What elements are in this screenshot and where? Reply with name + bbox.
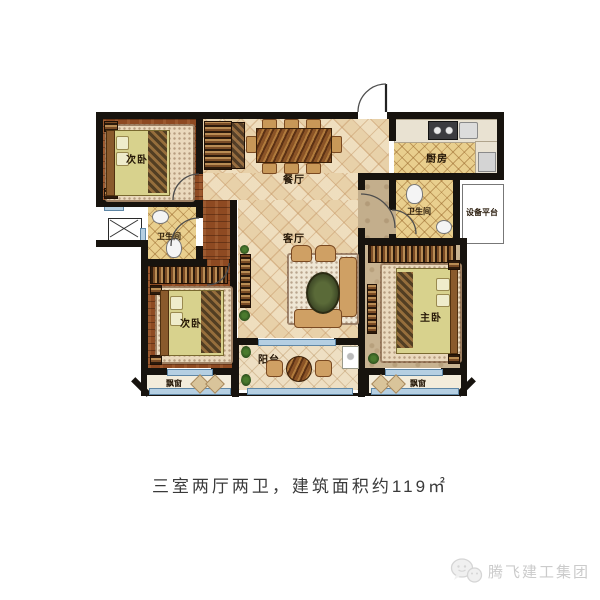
dining-chair bbox=[331, 136, 342, 153]
balcony-sliding-door bbox=[258, 339, 336, 346]
plant bbox=[239, 310, 250, 321]
wall bbox=[196, 119, 203, 174]
balcony-window bbox=[247, 388, 353, 395]
sofa-right bbox=[339, 257, 357, 317]
coffee-table bbox=[306, 272, 340, 314]
pillow bbox=[436, 294, 450, 307]
bedroom2-window bbox=[167, 369, 213, 376]
floor-plan-page: { "caption": { "text": "三室两厅两卫，建筑面积约119㎡… bbox=[0, 0, 600, 600]
hall-floor bbox=[203, 173, 358, 200]
wall bbox=[387, 112, 504, 119]
wall bbox=[229, 259, 237, 266]
dining-chair bbox=[306, 163, 321, 174]
bedroom1-throw bbox=[148, 131, 167, 193]
master-tv-cabinet bbox=[367, 284, 377, 334]
bath-right-label: 卫生间 bbox=[407, 206, 431, 217]
master-label: 主卧 bbox=[420, 309, 442, 324]
plant bbox=[240, 245, 249, 254]
plant bbox=[368, 353, 379, 364]
kitchen-sink-icon bbox=[459, 122, 478, 139]
bay-left-label: 飘窗 bbox=[166, 378, 182, 389]
watermark-text: 腾飞建工集团 bbox=[488, 561, 590, 582]
master-throw bbox=[397, 272, 413, 348]
bath-left-label: 卫生间 bbox=[157, 231, 181, 242]
bay-right-label: 飘窗 bbox=[410, 378, 426, 389]
bedroom2-label: 次卧 bbox=[180, 315, 202, 330]
bedroom2-headboard bbox=[160, 290, 169, 356]
master-nightstand bbox=[448, 354, 460, 364]
watermark: 腾飞建工集团 bbox=[450, 556, 590, 586]
dining-chair bbox=[262, 163, 277, 174]
pillow bbox=[436, 278, 450, 291]
kitchen-appliance-icon bbox=[478, 152, 496, 172]
washing-machine-icon bbox=[342, 346, 359, 369]
equipment-platform-label: 设备平台 bbox=[466, 207, 498, 218]
floor-plan: 次卧 餐厅 厨房 卫生间 设备平台 卫生间 客厅 次卧 bbox=[0, 0, 600, 600]
caption: 三室两厅两卫，建筑面积约119㎡ bbox=[0, 472, 600, 497]
bedroom2-wardrobe bbox=[150, 266, 228, 284]
plant bbox=[241, 346, 251, 358]
wall bbox=[196, 246, 203, 259]
elevator-shaft bbox=[108, 218, 142, 241]
wall bbox=[96, 112, 358, 119]
entry-cabinet bbox=[204, 121, 232, 170]
wall bbox=[358, 238, 467, 245]
bath-left-sink-icon bbox=[152, 210, 169, 224]
pillow bbox=[116, 136, 129, 150]
bedroom2-throw bbox=[201, 291, 221, 353]
dining-table bbox=[256, 128, 332, 163]
balcony-chair bbox=[315, 360, 332, 377]
balcony-chair bbox=[266, 360, 283, 377]
bath-right-sink-icon bbox=[436, 220, 452, 234]
bedroom1-label: 次卧 bbox=[126, 151, 148, 166]
balcony-table bbox=[286, 356, 312, 382]
entry-cabinet-2 bbox=[231, 122, 245, 169]
toilet-icon bbox=[406, 184, 423, 204]
wall bbox=[358, 173, 504, 180]
wall bbox=[389, 119, 396, 141]
bedroom2-nightstand bbox=[150, 355, 162, 365]
plant bbox=[241, 374, 251, 386]
master-nightstand bbox=[448, 260, 460, 270]
wall bbox=[96, 112, 103, 207]
chat-bubbles-icon bbox=[450, 556, 484, 586]
tv-cabinet bbox=[240, 254, 251, 308]
armchair bbox=[291, 245, 312, 262]
master-headboard bbox=[450, 268, 458, 354]
armchair bbox=[315, 245, 336, 262]
master-wardrobe bbox=[368, 245, 456, 263]
wall bbox=[453, 177, 460, 245]
living-label: 客厅 bbox=[283, 230, 305, 245]
pillow bbox=[170, 296, 183, 310]
bedroom1-headboard bbox=[106, 130, 115, 196]
wall bbox=[196, 200, 203, 218]
wall bbox=[389, 180, 396, 210]
wall bbox=[141, 259, 207, 266]
wall bbox=[497, 112, 504, 180]
stove-icon bbox=[428, 121, 458, 140]
kitchen-label: 厨房 bbox=[426, 150, 448, 165]
dining-label: 餐厅 bbox=[283, 171, 305, 186]
